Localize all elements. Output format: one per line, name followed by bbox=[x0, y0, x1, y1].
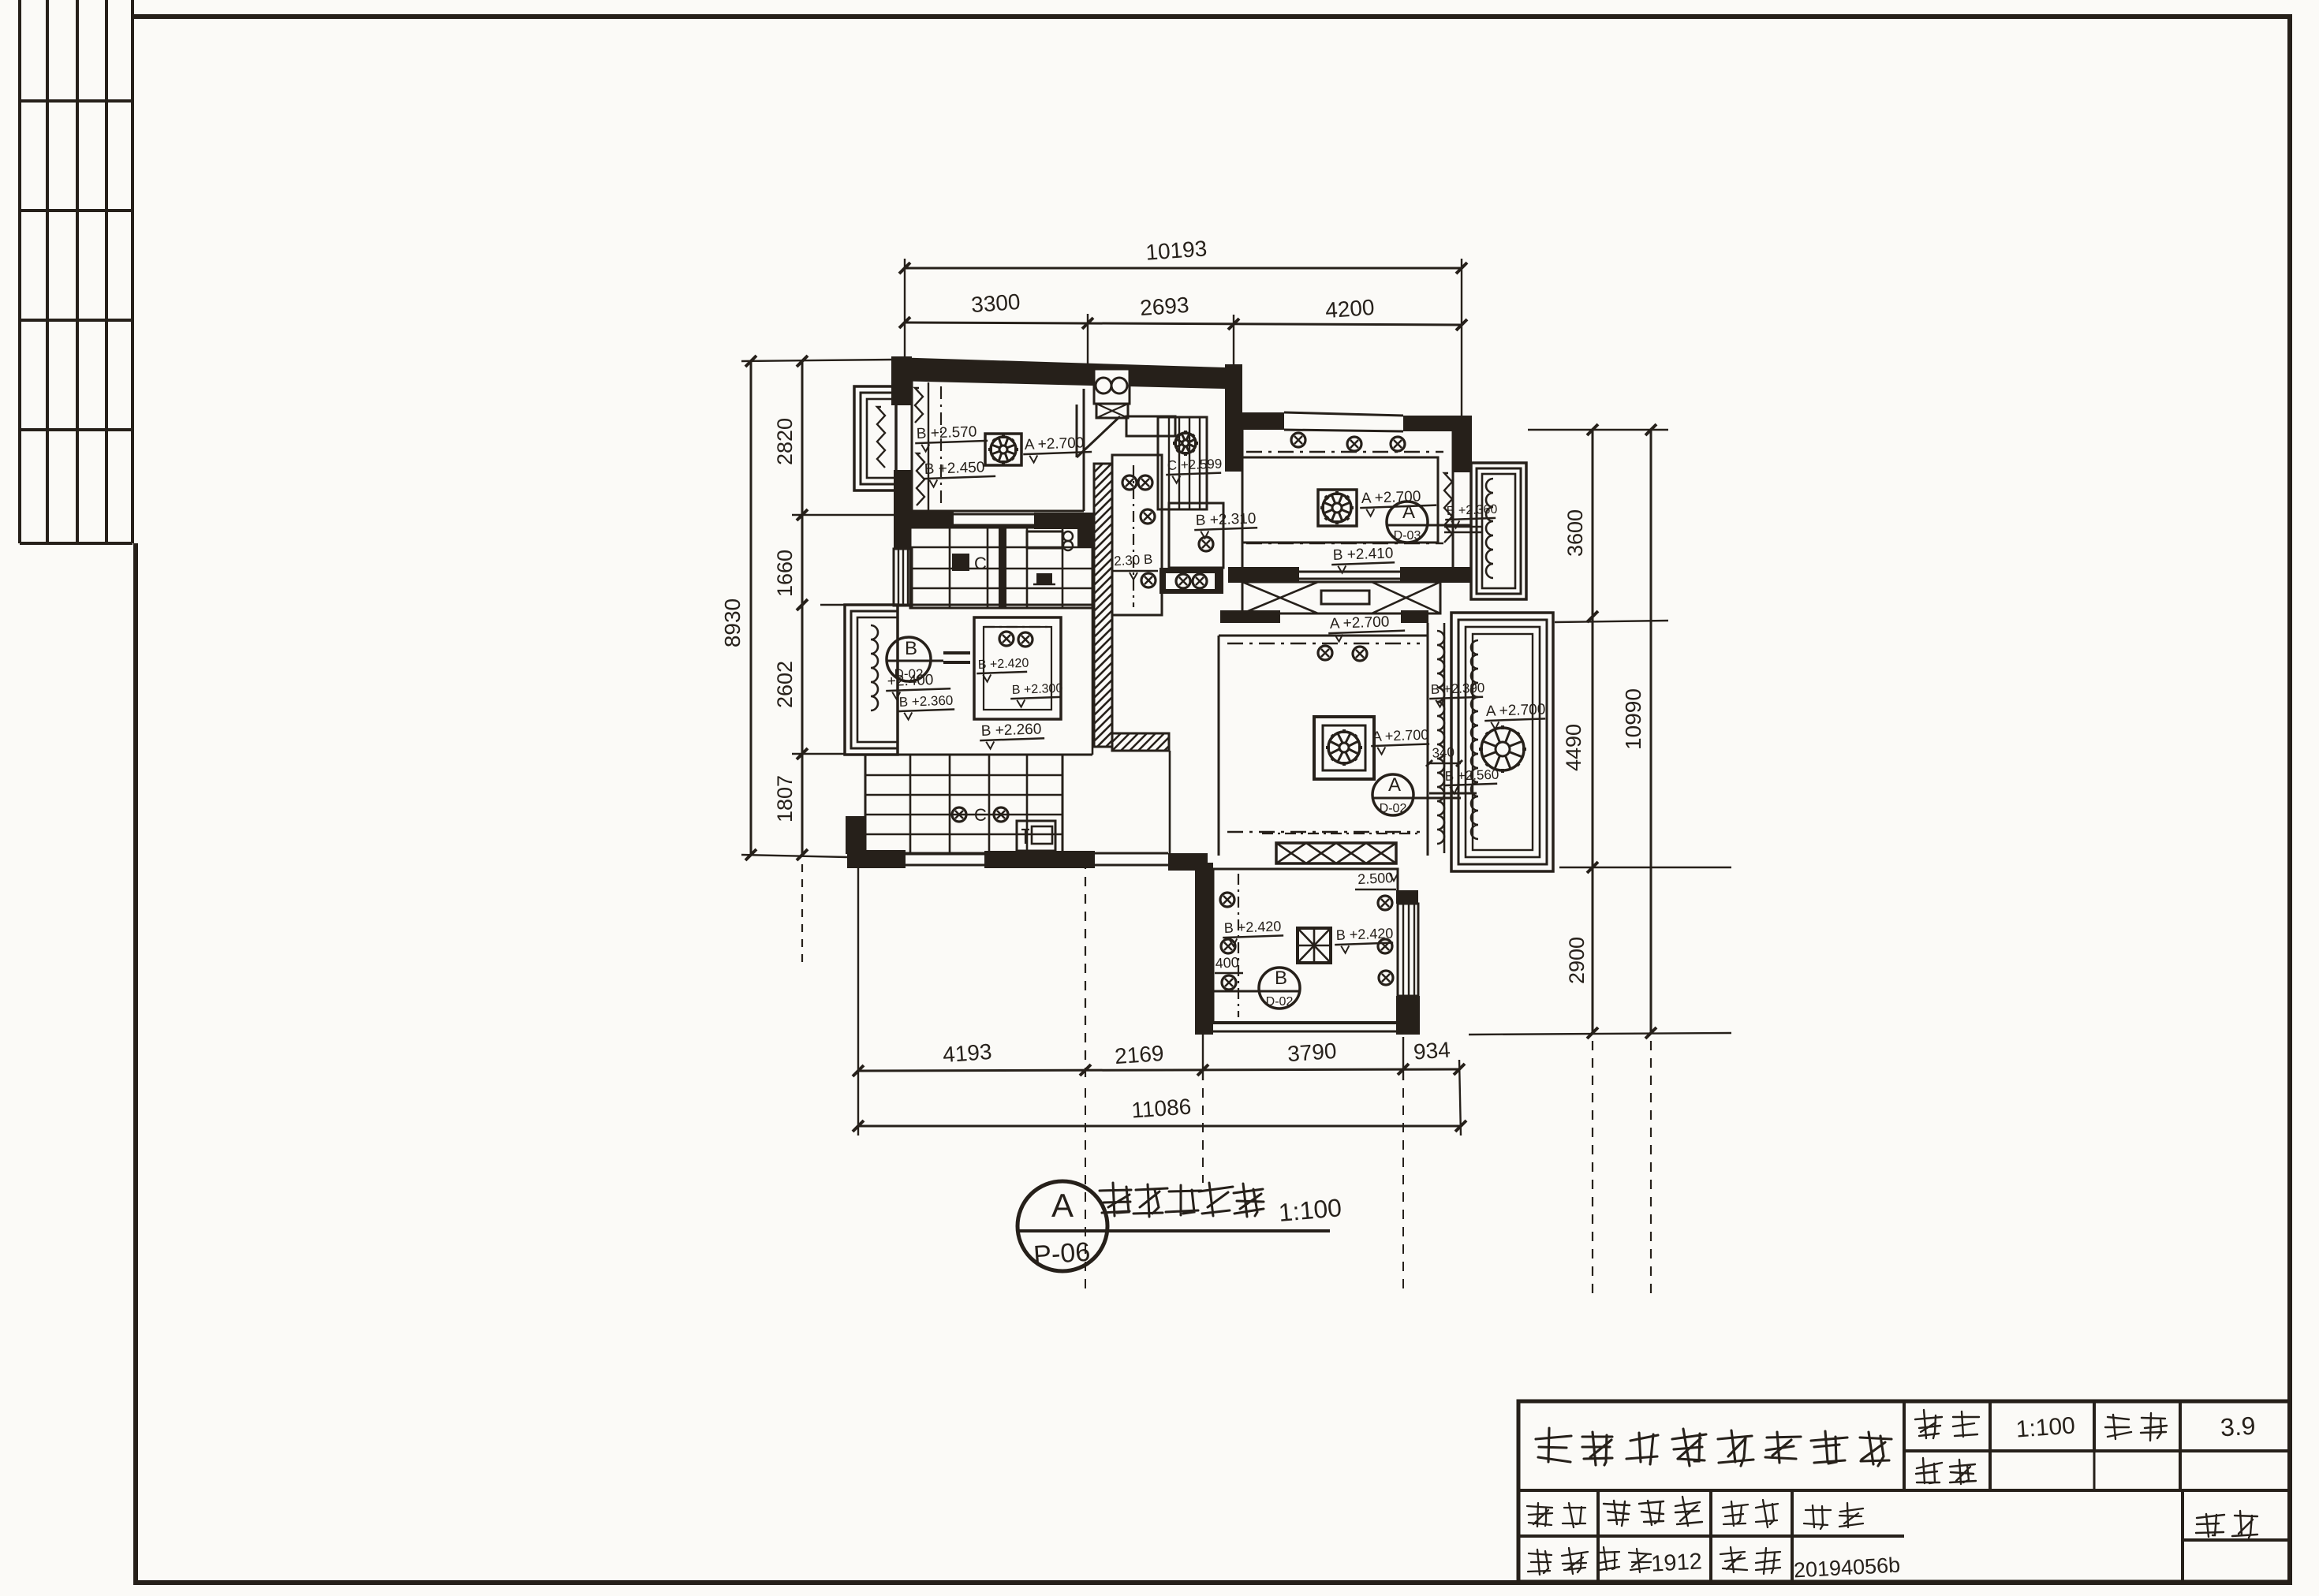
svg-text:3600: 3600 bbox=[1563, 509, 1587, 557]
svg-text:1:100: 1:100 bbox=[2015, 1412, 2076, 1442]
svg-text:B +2.570: B +2.570 bbox=[916, 423, 977, 442]
svg-text:A: A bbox=[1402, 502, 1415, 523]
svg-text:P-06: P-06 bbox=[1033, 1237, 1091, 1271]
svg-text:B +2.360: B +2.360 bbox=[1447, 503, 1498, 518]
svg-text:2820: 2820 bbox=[773, 418, 797, 465]
svg-text:2602: 2602 bbox=[773, 661, 797, 708]
svg-text:3300: 3300 bbox=[970, 289, 1021, 317]
svg-text:A: A bbox=[1051, 1187, 1074, 1224]
svg-text:D-03: D-03 bbox=[1394, 529, 1421, 543]
svg-text:C +2.599: C +2.599 bbox=[1167, 457, 1222, 473]
svg-text:A: A bbox=[1388, 774, 1401, 796]
svg-text:4193: 4193 bbox=[942, 1039, 992, 1067]
svg-text:A +2.700: A +2.700 bbox=[1329, 613, 1389, 632]
svg-text:400: 400 bbox=[1215, 954, 1239, 971]
svg-text:B +2.420: B +2.420 bbox=[1223, 918, 1281, 936]
svg-text:10193: 10193 bbox=[1145, 236, 1208, 264]
svg-text:B +2.310: B +2.310 bbox=[1195, 510, 1256, 529]
svg-text:B: B bbox=[1275, 968, 1287, 989]
svg-text:8930: 8930 bbox=[720, 598, 745, 647]
svg-text:B +2.360: B +2.360 bbox=[898, 693, 953, 710]
svg-text:B +2.410: B +2.410 bbox=[1332, 545, 1393, 564]
svg-text:B +2.260: B +2.260 bbox=[980, 721, 1041, 740]
svg-text:1660: 1660 bbox=[773, 550, 797, 597]
svg-text:2.30 B: 2.30 B bbox=[1114, 552, 1153, 569]
svg-text:3790: 3790 bbox=[1286, 1039, 1337, 1066]
svg-text:A +2.700: A +2.700 bbox=[1024, 434, 1084, 453]
svg-text:A +2.700: A +2.700 bbox=[1372, 727, 1428, 744]
svg-text:2693: 2693 bbox=[1139, 293, 1189, 320]
svg-text:1:100: 1:100 bbox=[1277, 1193, 1342, 1227]
svg-text:11086: 11086 bbox=[1130, 1094, 1192, 1122]
svg-text:3.9: 3.9 bbox=[2220, 1411, 2257, 1442]
svg-text:934: 934 bbox=[1413, 1037, 1451, 1064]
svg-text:B +2.450: B +2.450 bbox=[924, 459, 984, 478]
svg-text:D-02: D-02 bbox=[1266, 995, 1294, 1009]
svg-text:C: C bbox=[974, 554, 987, 573]
svg-text:1912: 1912 bbox=[1650, 1549, 1702, 1576]
svg-text:D-02: D-02 bbox=[1380, 802, 1407, 815]
svg-text:B: B bbox=[905, 638, 917, 659]
svg-text:2169: 2169 bbox=[1114, 1041, 1164, 1068]
svg-text:B +2.420: B +2.420 bbox=[1335, 925, 1393, 943]
svg-text:+2.400: +2.400 bbox=[887, 672, 933, 690]
svg-text:10990: 10990 bbox=[1621, 688, 1645, 750]
svg-text:B +2.420: B +2.420 bbox=[978, 657, 1029, 672]
svg-text:4200: 4200 bbox=[1324, 295, 1375, 323]
svg-text:2900: 2900 bbox=[1565, 937, 1589, 984]
svg-text:4490: 4490 bbox=[1562, 724, 1585, 771]
svg-text:B +2.300: B +2.300 bbox=[1012, 682, 1063, 697]
svg-text:B +2.560: B +2.560 bbox=[1444, 767, 1499, 784]
svg-text:1807: 1807 bbox=[773, 775, 797, 822]
svg-text:C: C bbox=[974, 805, 987, 825]
svg-text:A +2.700: A +2.700 bbox=[1485, 701, 1545, 720]
svg-text:2.500: 2.500 bbox=[1357, 870, 1394, 887]
